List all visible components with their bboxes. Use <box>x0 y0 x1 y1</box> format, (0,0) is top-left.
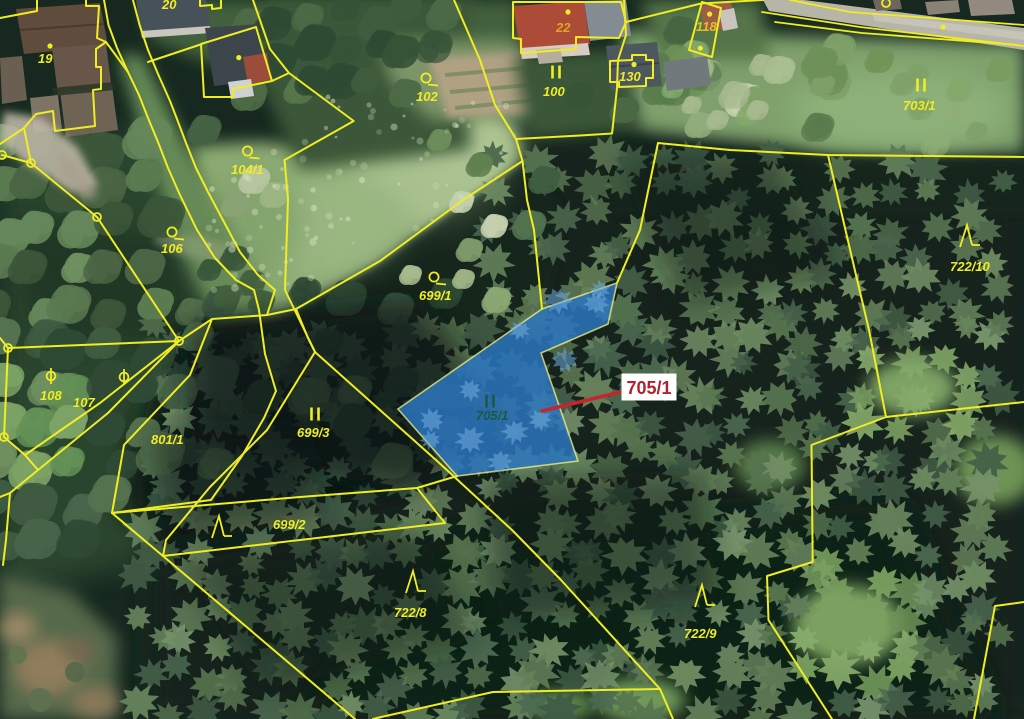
svg-text:20: 20 <box>161 0 177 12</box>
svg-text:699/3: 699/3 <box>297 425 330 440</box>
svg-text:703/1: 703/1 <box>903 98 936 113</box>
svg-text:22: 22 <box>555 20 571 35</box>
svg-text:722/9: 722/9 <box>684 626 717 641</box>
svg-text:705/1: 705/1 <box>476 408 509 423</box>
svg-text:722/10: 722/10 <box>950 259 991 274</box>
svg-text:108: 108 <box>40 388 62 403</box>
svg-text:102: 102 <box>416 89 438 104</box>
svg-text:107: 107 <box>73 395 95 410</box>
svg-text:106: 106 <box>161 241 183 256</box>
svg-text:705/1: 705/1 <box>626 378 671 398</box>
svg-text:801/1: 801/1 <box>151 432 184 447</box>
svg-text:699/2: 699/2 <box>273 517 306 532</box>
svg-text:100: 100 <box>543 84 565 99</box>
svg-text:19: 19 <box>38 51 53 66</box>
svg-text:699/1: 699/1 <box>419 288 452 303</box>
svg-text:118: 118 <box>696 19 717 34</box>
svg-text:104/1: 104/1 <box>231 162 264 177</box>
svg-text:130: 130 <box>619 69 641 84</box>
svg-text:722/8: 722/8 <box>394 605 427 620</box>
